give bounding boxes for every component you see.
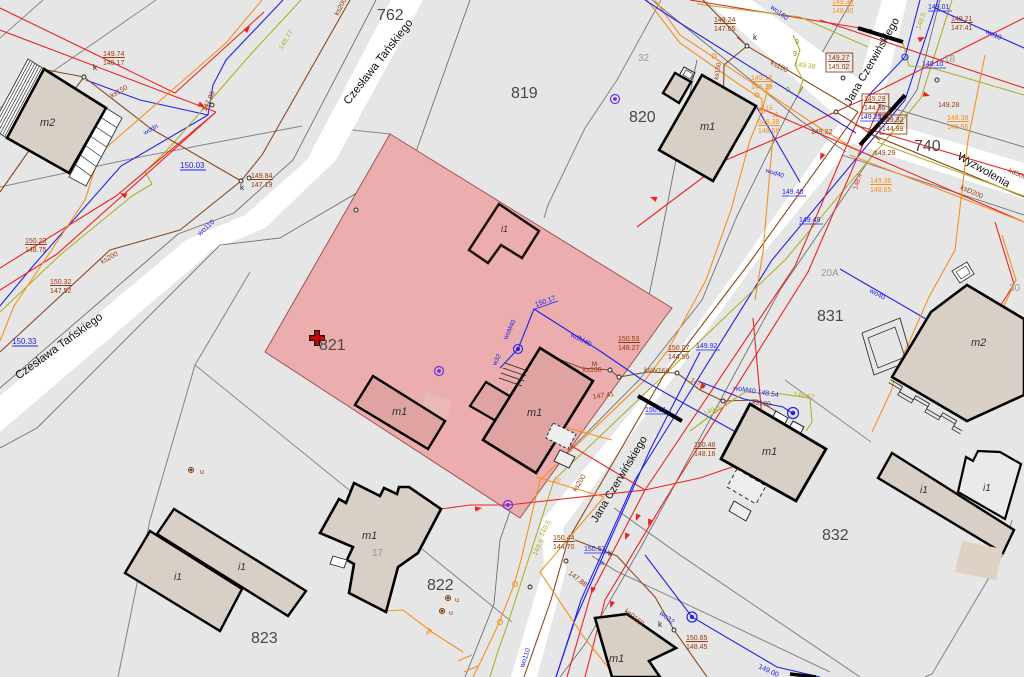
- svg-text:150.01: 150.01: [645, 407, 667, 414]
- svg-text:145.02: 145.02: [828, 64, 850, 71]
- svg-text:150.33: 150.33: [12, 337, 37, 346]
- svg-text:149.10: 149.10: [922, 61, 944, 68]
- svg-text:150.65: 150.65: [686, 635, 708, 642]
- svg-text:823: 823: [251, 630, 278, 647]
- svg-text:i1: i1: [983, 483, 991, 494]
- svg-text:M: M: [592, 362, 597, 368]
- svg-text:150.23: 150.23: [25, 238, 47, 245]
- svg-text:832: 832: [822, 527, 849, 544]
- svg-text:w: w: [599, 561, 605, 567]
- svg-text:149.28: 149.28: [938, 102, 960, 109]
- svg-text:30: 30: [1009, 283, 1021, 294]
- svg-text:150.46: 150.46: [694, 442, 716, 449]
- svg-text:9: 9: [786, 87, 790, 94]
- svg-text:150.53: 150.53: [618, 336, 640, 343]
- svg-text:148.30: 148.30: [832, 8, 854, 15]
- svg-text:32: 32: [638, 53, 650, 64]
- svg-text:148.68: 148.68: [758, 128, 780, 135]
- svg-text:762: 762: [377, 7, 404, 24]
- svg-text:u: u: [449, 610, 453, 617]
- svg-text:147.52: 147.52: [50, 288, 72, 295]
- svg-text:149.27: 149.27: [828, 55, 850, 62]
- svg-text:15: 15: [766, 106, 773, 112]
- svg-text:149.25: 149.25: [860, 114, 882, 121]
- svg-text:148.65: 148.65: [870, 187, 892, 194]
- svg-text:i1: i1: [920, 485, 928, 496]
- svg-text:ksW160: ksW160: [644, 367, 670, 375]
- svg-text:ks100: ks100: [583, 367, 602, 374]
- svg-text:144.56: 144.56: [668, 354, 690, 361]
- svg-text:147.19: 147.19: [251, 182, 273, 189]
- svg-text:20A: 20A: [821, 268, 839, 279]
- svg-text:149.84: 149.84: [251, 173, 273, 180]
- svg-text:15: 15: [772, 113, 779, 119]
- svg-text:m1: m1: [362, 530, 377, 542]
- svg-text:150.03: 150.03: [180, 161, 205, 170]
- svg-text:m1: m1: [527, 407, 542, 419]
- svg-text:144.36: 144.36: [864, 105, 886, 112]
- svg-text:148.45: 148.45: [686, 644, 708, 651]
- svg-text:149.21: 149.21: [951, 16, 973, 23]
- svg-text:144.70: 144.70: [553, 544, 575, 551]
- svg-text:820: 820: [629, 109, 656, 126]
- svg-text:150.07: 150.07: [668, 345, 690, 352]
- svg-text:m1: m1: [700, 121, 715, 133]
- svg-text:149.38: 149.38: [947, 115, 969, 122]
- svg-text:148.66: 148.66: [947, 124, 969, 131]
- svg-text:150.32: 150.32: [50, 279, 72, 286]
- svg-text:149.01: 149.01: [928, 4, 950, 11]
- svg-text:i1: i1: [174, 572, 182, 583]
- svg-text:149.92: 149.92: [696, 343, 718, 350]
- svg-text:149.49: 149.49: [799, 217, 821, 224]
- svg-text:149.32: 149.32: [882, 117, 904, 124]
- svg-text:821: 821: [319, 337, 346, 354]
- svg-text:m1: m1: [762, 446, 777, 458]
- svg-text:822: 822: [427, 577, 454, 594]
- svg-text:147.65: 147.65: [714, 26, 736, 33]
- svg-text:740: 740: [914, 138, 941, 155]
- svg-text:9: 9: [793, 51, 797, 58]
- svg-text:i1: i1: [238, 562, 246, 573]
- svg-text:148.27: 148.27: [618, 345, 640, 352]
- svg-text:149.40: 149.40: [782, 189, 804, 196]
- svg-text:149.29: 149.29: [874, 150, 896, 157]
- svg-text:18: 18: [944, 54, 956, 65]
- svg-text:9: 9: [795, 39, 799, 46]
- svg-text:831: 831: [817, 308, 844, 325]
- svg-text:147.41: 147.41: [951, 25, 973, 32]
- svg-text:149.22: 149.22: [811, 129, 833, 136]
- svg-text:m2: m2: [40, 117, 55, 129]
- svg-text:819: 819: [511, 85, 538, 102]
- svg-text:17: 17: [372, 548, 384, 559]
- svg-text:144.99: 144.99: [882, 126, 904, 133]
- svg-text:i1: i1: [501, 224, 508, 234]
- svg-text:150.44: 150.44: [553, 535, 575, 542]
- svg-text:148.16: 148.16: [694, 451, 716, 458]
- svg-text:u: u: [200, 469, 204, 476]
- svg-text:149.36: 149.36: [870, 178, 892, 185]
- svg-text:m2: m2: [971, 337, 986, 349]
- svg-text:m1: m1: [609, 653, 624, 665]
- svg-text:149.29: 149.29: [864, 96, 886, 103]
- svg-text:m1: m1: [392, 406, 407, 418]
- svg-text:148.75: 148.75: [25, 247, 47, 254]
- svg-text:u: u: [455, 597, 459, 604]
- svg-text:149.24: 149.24: [714, 17, 736, 24]
- svg-text:149.74: 149.74: [103, 51, 125, 58]
- svg-text:149.38: 149.38: [758, 119, 780, 126]
- svg-text:148.17: 148.17: [103, 60, 125, 67]
- svg-text:150.53: 150.53: [584, 546, 606, 553]
